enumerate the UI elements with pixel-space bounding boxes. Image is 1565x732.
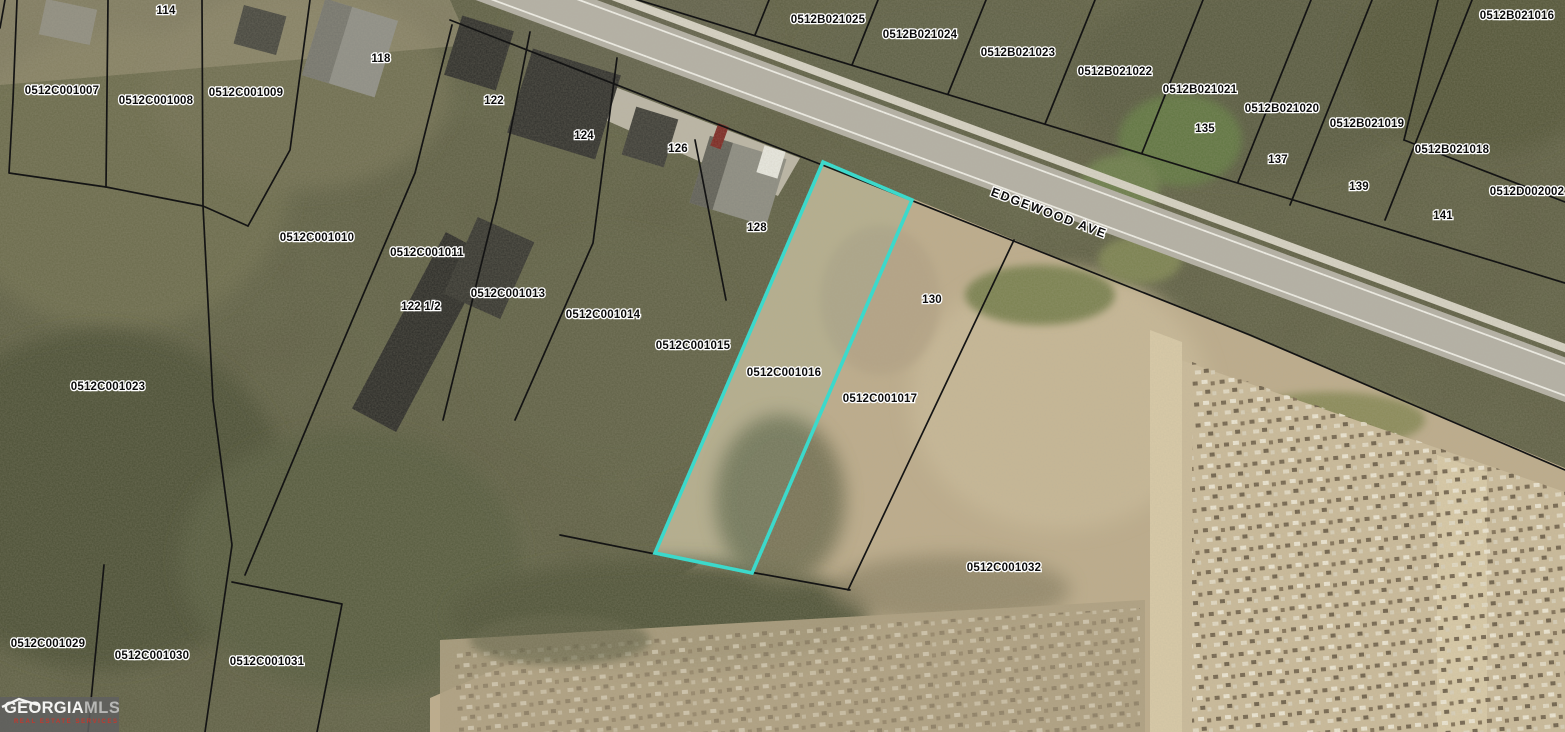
- parcel-label-c1008: 0512C001008: [119, 95, 194, 107]
- parcel-label-b21022: 0512B021022: [1078, 66, 1152, 78]
- logo-brand-secondary: MLS: [84, 700, 119, 717]
- parcel-label-c1010: 0512C001010: [280, 232, 354, 244]
- address-label-122: 122: [484, 95, 504, 107]
- parcel-label-b21019: 0512B021019: [1330, 118, 1404, 130]
- parcel-label-c1007: 0512C001007: [25, 85, 99, 97]
- parcel-label-c1017: 0512C001017: [843, 393, 917, 405]
- address-label-137: 137: [1268, 154, 1288, 166]
- address-label-118: 118: [371, 53, 391, 65]
- parcel-label-b21023: 0512B021023: [981, 47, 1055, 59]
- parcel-label-c1016: 0512C001016: [747, 367, 821, 379]
- parcel-label-b21025: 0512B021025: [791, 14, 866, 26]
- address-label-135: 135: [1195, 123, 1215, 135]
- parcel-label-c1009: 0512C001009: [209, 87, 283, 99]
- address-label-124: 124: [574, 130, 594, 142]
- georgia-mls-logo: GEORGIA MLS REAL ESTATE SERVICES: [0, 697, 119, 732]
- parcel-label-c1030: 0512C001030: [115, 650, 189, 662]
- parcel-label-c1031: 0512C001031: [230, 656, 305, 668]
- map-canvas[interactable]: EDGEWOOD AVE 0512B021025 0512B021024 051…: [0, 0, 1565, 732]
- parcel-label-c1014: 0512C001014: [566, 309, 641, 321]
- parcel-label-b21016: 0512B021016: [1480, 10, 1554, 22]
- satellite-map: EDGEWOOD AVE 0512B021025 0512B021024 051…: [0, 0, 1565, 732]
- address-label-141: 141: [1433, 210, 1453, 222]
- address-label-139: 139: [1349, 181, 1369, 193]
- parcel-label-c1011: 0512C001011: [390, 247, 464, 259]
- parcel-label-d2002: 0512D002002: [1490, 186, 1564, 198]
- parcel-label-b21021: 0512B021021: [1163, 84, 1238, 96]
- parcel-label-b21024: 0512B021024: [883, 29, 958, 41]
- address-label-114: 114: [156, 5, 176, 17]
- address-label-130: 130: [922, 294, 942, 306]
- parcel-label-c1013: 0512C001013: [471, 288, 545, 300]
- parcel-label-b21020: 0512B021020: [1245, 103, 1319, 115]
- roof-icon: [0, 697, 42, 708]
- address-label-126: 126: [668, 143, 688, 155]
- address-label-128: 128: [747, 222, 767, 234]
- parcel-label-c1029: 0512C001029: [11, 638, 85, 650]
- parcel-label-b21018: 0512B021018: [1415, 144, 1490, 156]
- address-label-122-half: 122 1/2: [401, 301, 441, 313]
- parcel-label-c1032: 0512C001032: [967, 562, 1041, 574]
- logo-tagline: REAL ESTATE SERVICES: [0, 717, 119, 725]
- parcel-label-c1023: 0512C001023: [71, 381, 145, 393]
- parcel-label-c1015: 0512C001015: [656, 340, 731, 352]
